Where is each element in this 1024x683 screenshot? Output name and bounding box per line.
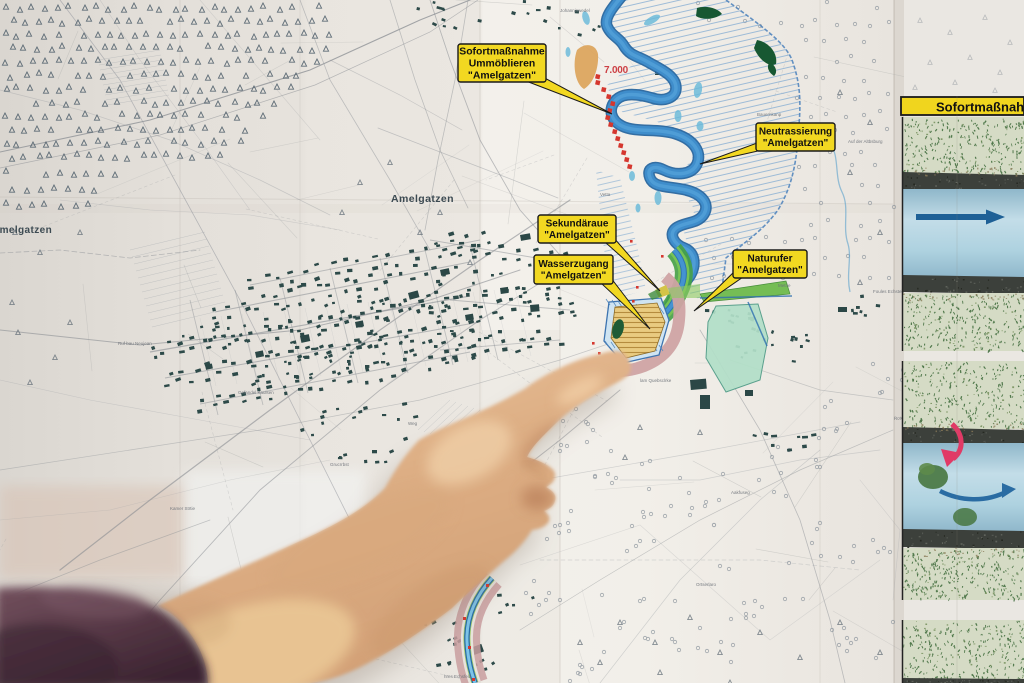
svg-text:Kamer Strtie: Kamer Strtie [170,506,196,511]
svg-text:"Amelgatzen": "Amelgatzen" [468,71,536,82]
svg-text:hres Echsfeld: hres Echsfeld [444,674,472,679]
svg-text:Neutrassierung: Neutrassierung [759,127,832,138]
svg-text:Weg: Weg [408,421,418,426]
svg-text:Aakfuseg: Aakfuseg [731,490,750,495]
svg-text:"Amelgatzen": "Amelgatzen" [541,271,607,282]
svg-text:Bauernkanp: Bauernkanp [757,112,782,117]
svg-text:Foules Echsteld: Foules Echsteld [873,289,906,294]
svg-text:Sekundäraue: Sekundäraue [546,219,609,230]
svg-text:Johanniswedel: Johanniswedel [560,8,590,13]
svg-text:"Amelgatzen": "Amelgatzen" [544,230,610,241]
svg-text:Amelgatzen: Amelgatzen [0,225,52,236]
svg-text:Ortserlaro: Ortserlaro [696,582,717,587]
svg-text:Auf der Altbsburg: Auf der Altbsburg [848,139,883,144]
svg-text:Ruf bau Neujean: Ruf bau Neujean [118,341,152,346]
svg-text:Ummöblieren: Ummöblieren [469,58,535,69]
svg-text:Wasserzugang: Wasserzugang [538,259,608,270]
svg-text:Naturufer: Naturufer [747,254,792,265]
svg-text:"Amelgatzen": "Amelgatzen" [737,265,803,276]
svg-text:lam Quebsclrke: lam Quebsclrke [640,378,672,383]
svg-text:Vetta: Vetta [600,192,611,197]
svg-text:Gefandel Kaulsen: Gefandel Kaulsen [238,390,274,395]
svg-text:"Amelgatzen": "Amelgatzen" [763,138,829,149]
svg-text:Amelgatzen: Amelgatzen [391,193,454,205]
svg-text:7.000: 7.000 [604,65,629,76]
svg-text:Sofortmaßnahme: Sofortmaßnahme [459,46,545,57]
svg-text:Metrie: Metrie [778,283,791,288]
svg-text:Sofortmaßnahm: Sofortmaßnahm [936,100,1024,115]
svg-text:Grucrrbst: Grucrrbst [330,462,350,467]
